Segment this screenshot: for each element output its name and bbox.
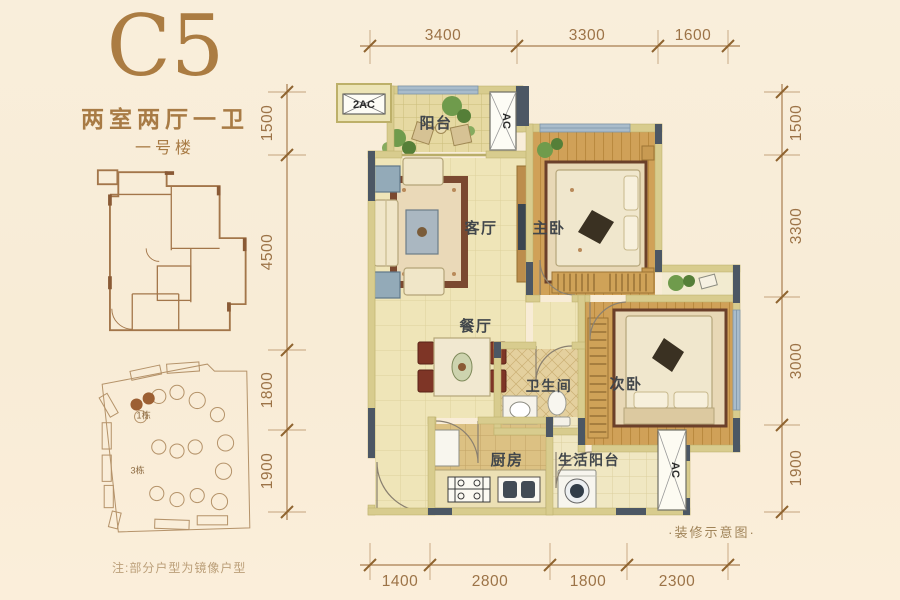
dim-left-2: 4500: [259, 234, 276, 270]
master-wardrobe: [552, 272, 654, 293]
dim-top-2: 3300: [569, 27, 605, 44]
dim-right-2: 3300: [788, 208, 805, 244]
dim-bottom-2: 2800: [472, 573, 508, 590]
dim-top-1: 3400: [425, 27, 461, 44]
second-bedroom-label: 次卧: [609, 375, 642, 393]
ac-2ac-label: 2AC: [353, 99, 375, 111]
dim-bottom-4: 2300: [659, 573, 695, 590]
dim-left-4: 1900: [259, 453, 276, 489]
mirror-note: 注:部分户型为镜像户型: [112, 559, 246, 576]
dining-label: 餐厅: [459, 317, 492, 335]
kitchen-label: 厨房: [490, 451, 523, 469]
floor-plan: 2AC AC AC 阳台 客厅 主卧 餐厅 卫生间 次卧 厨房 生活阳台: [0, 0, 900, 600]
nightstand: [642, 146, 654, 160]
balcony-label: 阳台: [419, 114, 452, 132]
dim-left-1: 1500: [259, 105, 276, 141]
second-bed: [614, 310, 726, 426]
ac-utility-label: AC: [669, 462, 681, 478]
ac-balcony-label: AC: [500, 113, 512, 129]
ac-unit-utility: AC: [658, 430, 686, 510]
second-wardrobe: [588, 318, 608, 438]
dim-right-1: 1500: [788, 105, 805, 141]
bathroom-label: 卫生间: [526, 378, 573, 394]
dim-left-3: 1800: [259, 372, 276, 408]
ac-unit-balcony: AC: [490, 92, 516, 150]
ac-platform-2ac: 2AC: [337, 84, 391, 122]
master-bedroom-label: 主卧: [532, 219, 565, 237]
utility-balcony-label: 生活阳台: [558, 452, 620, 468]
coffee-table: [406, 210, 438, 254]
dim-top-3: 1600: [675, 27, 711, 44]
fridge: [434, 430, 459, 466]
dim-right-4: 1900: [788, 450, 805, 486]
washing-machine: [558, 470, 596, 510]
foyer-floor: [375, 417, 428, 508]
living-label: 客厅: [463, 219, 497, 237]
dim-bottom-1: 1400: [382, 573, 418, 590]
decoration-caption: ·装修示意图·: [642, 522, 782, 541]
dim-bottom-3: 1800: [570, 573, 606, 590]
floorplan-page: C5 两室两厅一卫 一号楼: [0, 0, 900, 600]
dim-right-3: 3000: [788, 343, 805, 379]
